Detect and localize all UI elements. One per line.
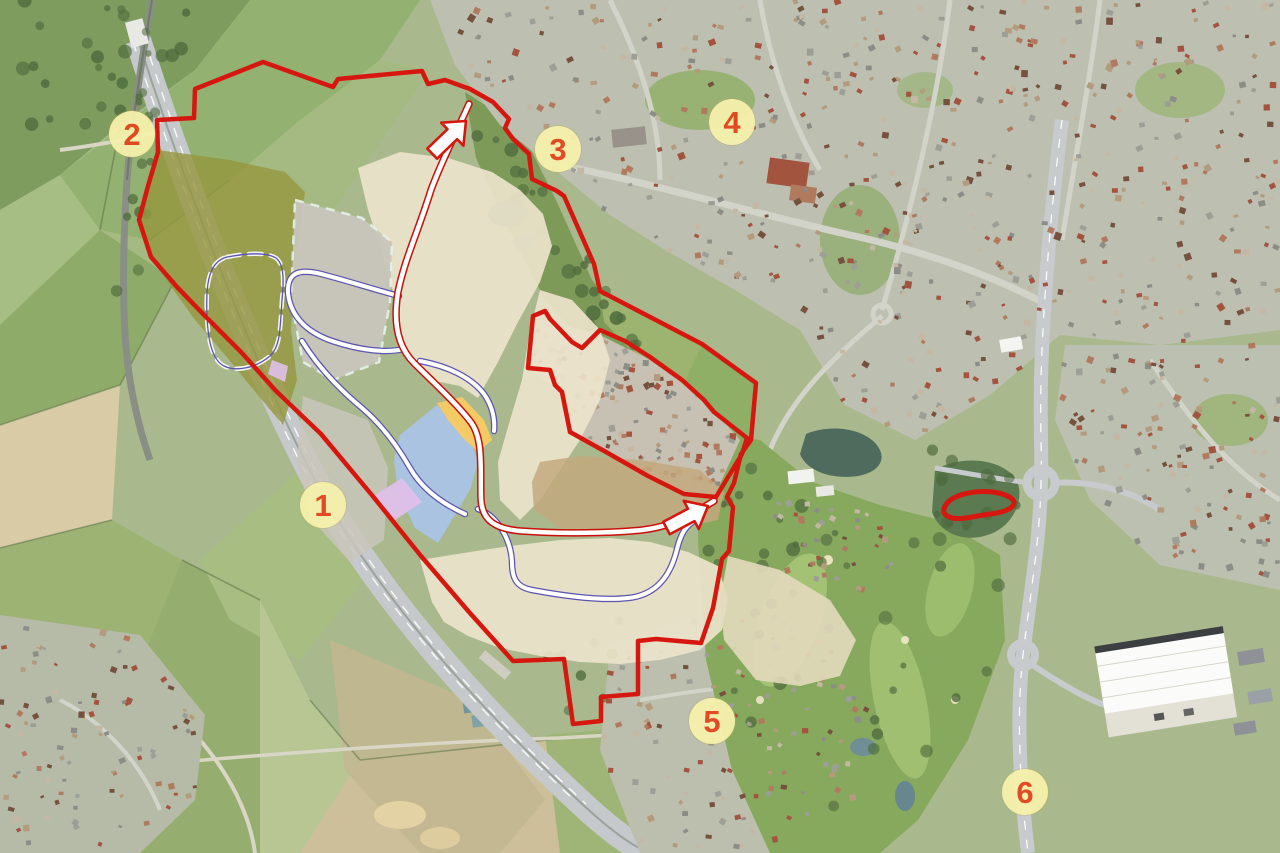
- map-canvas: [0, 0, 1280, 853]
- map-marker-1[interactable]: 1: [300, 482, 346, 528]
- map-marker-6[interactable]: 6: [1002, 769, 1048, 815]
- map-marker-3[interactable]: 3: [535, 126, 581, 172]
- map-marker-5[interactable]: 5: [689, 698, 735, 744]
- aerial-masterplan-map: 123456: [0, 0, 1280, 853]
- map-marker-4[interactable]: 4: [709, 99, 755, 145]
- map-marker-2[interactable]: 2: [109, 111, 155, 157]
